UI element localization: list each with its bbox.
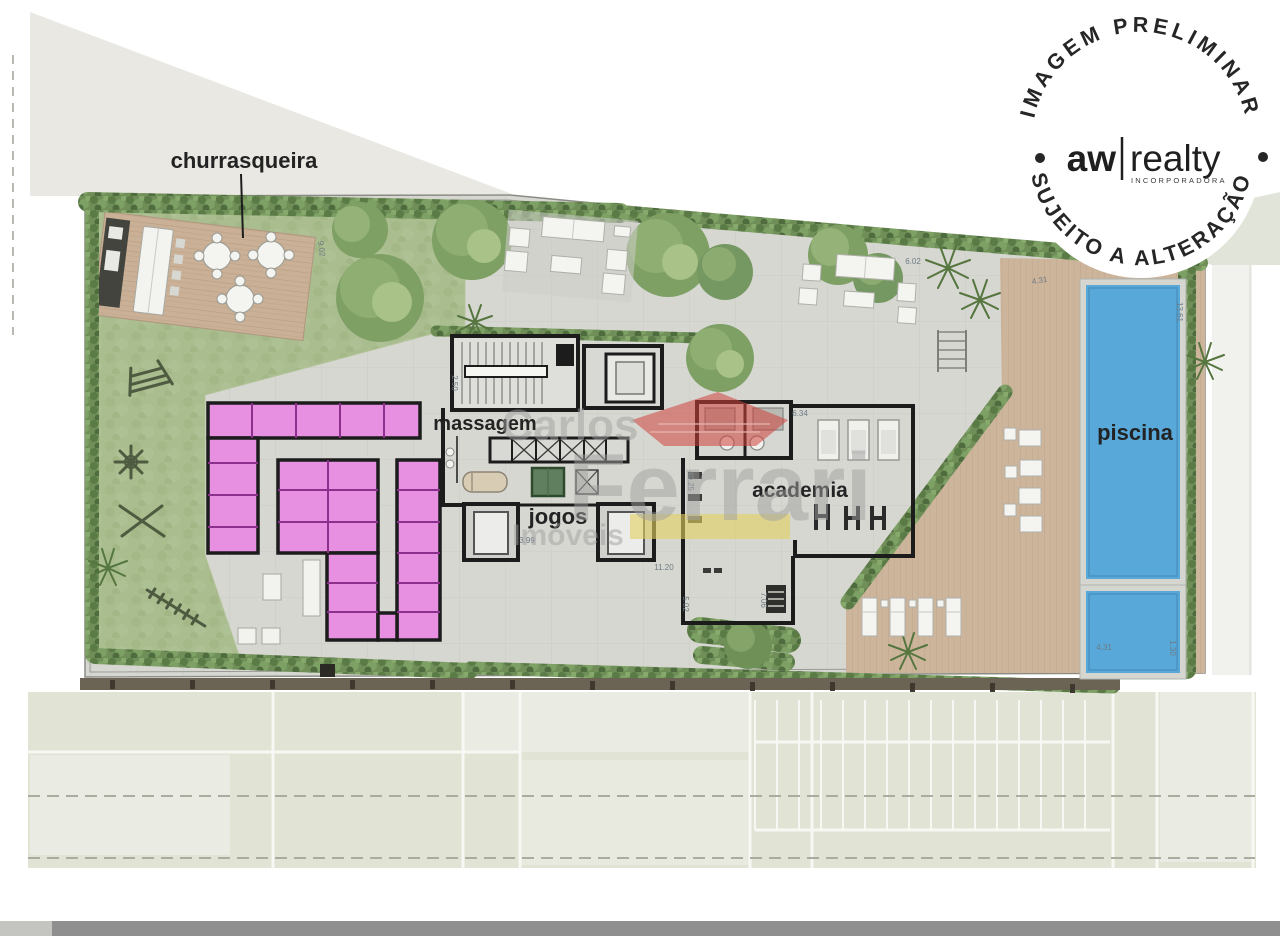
svg-text:2.50: 2.50 <box>450 375 459 391</box>
svg-text:5.02: 5.02 <box>681 596 690 612</box>
label-piscina: piscina <box>1097 420 1174 445</box>
svg-text:6.02: 6.02 <box>905 257 921 266</box>
spider-web-icon <box>115 446 147 478</box>
tree <box>336 254 424 342</box>
lounge-set-center <box>502 209 639 302</box>
neighbor-grid <box>28 692 1256 868</box>
watermark-line3: Imóveis <box>512 519 624 552</box>
stamp-dot-left <box>1035 153 1045 163</box>
stamp-dot-right <box>1258 152 1268 162</box>
svg-text:1.30: 1.30 <box>1168 640 1177 656</box>
svg-text:7.06: 7.06 <box>759 592 768 608</box>
pool <box>1080 279 1186 679</box>
floor-plan-canvas: 9.02 2.50 6.02 4.31 13.61 4.31 1.30 11.2… <box>0 0 1280 936</box>
label-churrasqueira: churrasqueira <box>171 148 318 173</box>
stamp-brand-sub: INCORPORADORA <box>1131 176 1227 185</box>
kids-pool-water <box>1086 591 1180 673</box>
bottom-street-bar <box>0 921 1280 936</box>
stamp-brand-aw: aw <box>1067 138 1117 179</box>
svg-text:13.61: 13.61 <box>1175 302 1184 323</box>
massage-table <box>463 472 507 492</box>
floor-plan: 9.02 2.50 6.02 4.31 13.61 4.31 1.30 11.2… <box>0 0 1280 936</box>
svg-text:11.20: 11.20 <box>654 563 674 572</box>
stamp-watermark: IMAGEM PRELIMINAR SUJEITO A ALTERAÇÃO aw… <box>1016 13 1268 278</box>
svg-text:4.31: 4.31 <box>1096 643 1112 652</box>
stamp-brand-realty: realty <box>1130 138 1221 179</box>
svg-text:6.34: 6.34 <box>792 409 808 418</box>
